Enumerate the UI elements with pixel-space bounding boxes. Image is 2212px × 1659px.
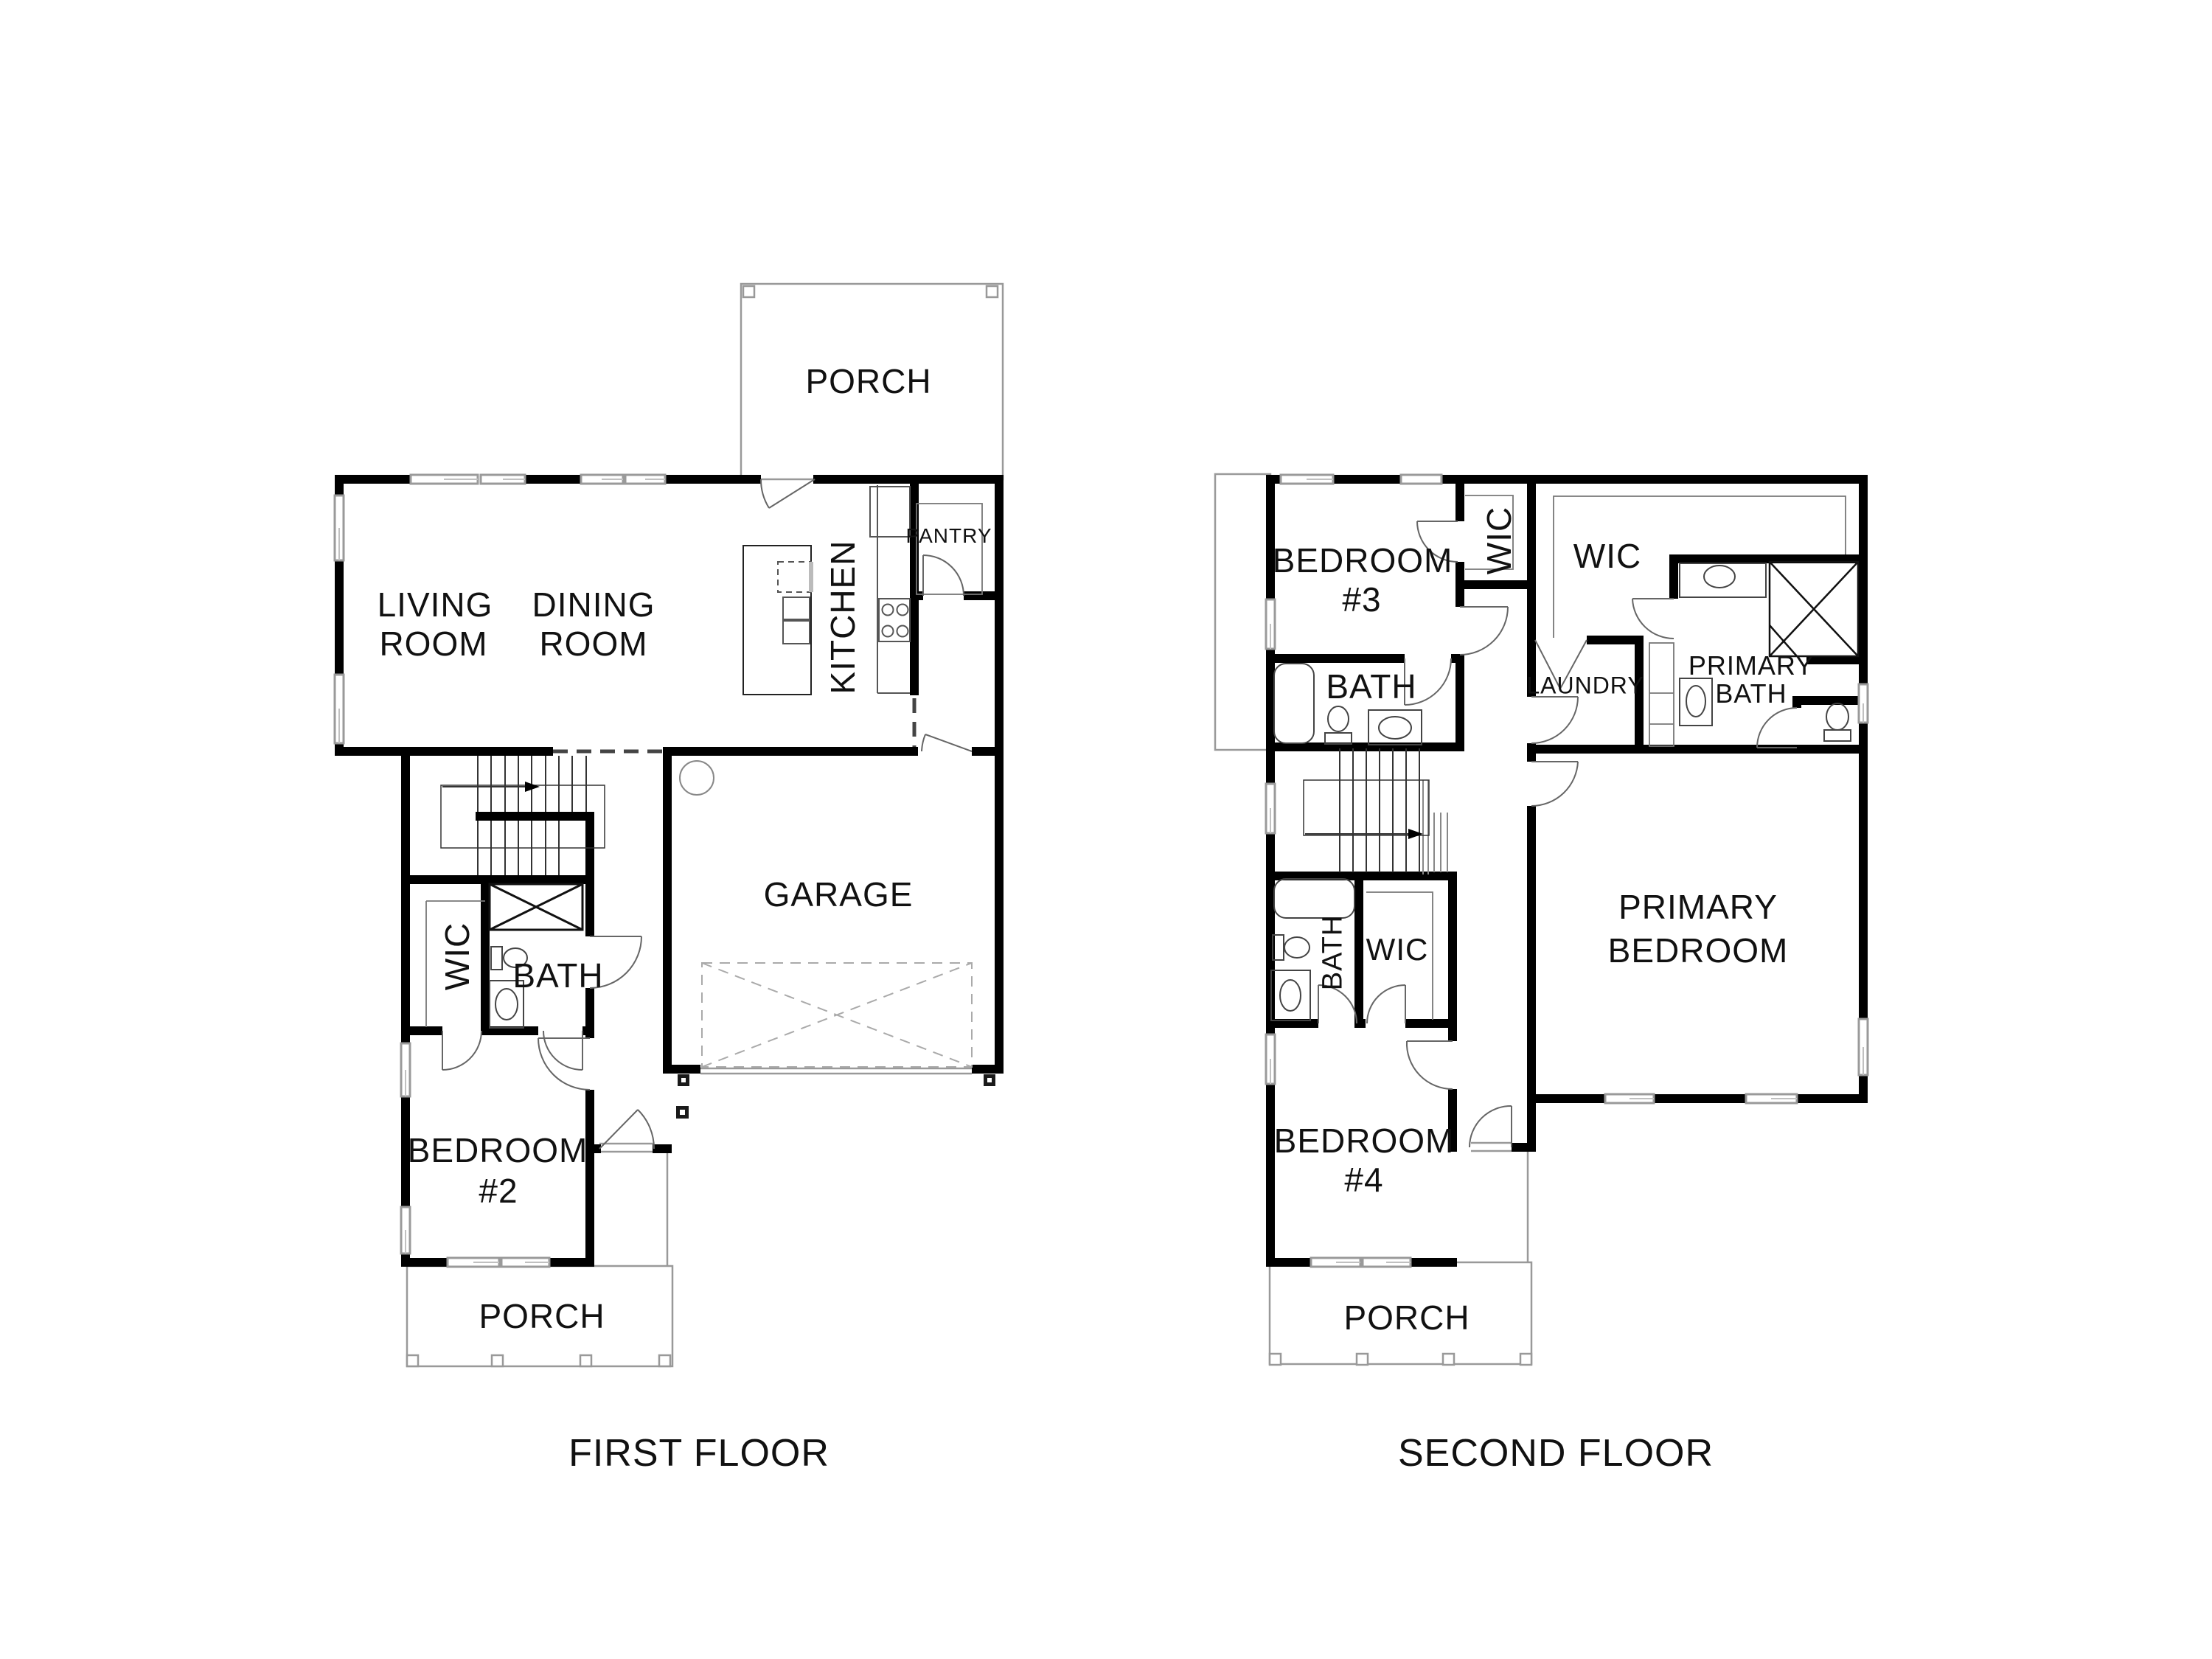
- second-floor-stairs: [1304, 748, 1447, 874]
- label-bedroom4-1: BEDROOM: [1274, 1121, 1455, 1161]
- label-primary-bath-1: PRIMARY: [1688, 650, 1814, 681]
- label-primary-bedroom-2: BEDROOM: [1608, 931, 1789, 970]
- label-living-room-1: LIVING: [378, 585, 493, 625]
- first-floor-title: FIRST FLOOR: [568, 1431, 829, 1475]
- first-floor-cased-openings: [553, 698, 914, 751]
- label-bedroom2-2: #2: [479, 1171, 518, 1211]
- label-pantry: PANTRY: [906, 524, 992, 548]
- label-porch-bottom: PORCH: [479, 1296, 605, 1336]
- first-floor-plan: [335, 284, 1004, 1366]
- second-floor-title: SECOND FLOOR: [1398, 1431, 1714, 1475]
- label-porch-top: PORCH: [805, 361, 931, 401]
- label-porch-second: PORCH: [1343, 1298, 1470, 1338]
- label-kitchen: KITCHEN: [823, 540, 863, 695]
- label-laundry: LAUNDRY: [1526, 672, 1644, 700]
- label-bath-upper: BATH: [1326, 667, 1416, 706]
- first-floor-posts: [676, 1074, 995, 1119]
- label-wic-large: WIC: [1573, 536, 1641, 576]
- label-dining-room-2: ROOM: [539, 624, 647, 664]
- label-primary-bath-2: BATH: [1715, 678, 1787, 709]
- label-bedroom4-2: #4: [1344, 1160, 1383, 1200]
- label-wic-first: WIC: [437, 922, 477, 990]
- kitchen-fixtures: [743, 485, 982, 695]
- label-bedroom3-1: BEDROOM: [1273, 540, 1453, 580]
- label-bath-first: BATH: [512, 956, 603, 995]
- label-living-room-2: ROOM: [379, 624, 487, 664]
- label-bedroom2-1: BEDROOM: [408, 1130, 588, 1170]
- label-wic-small: WIC: [1479, 507, 1519, 574]
- label-dining-room-1: DINING: [532, 585, 655, 625]
- label-bath-lower: BATH: [1318, 915, 1349, 991]
- label-wic-lower: WIC: [1366, 932, 1429, 967]
- label-garage: GARAGE: [764, 874, 914, 914]
- label-bedroom3-2: #3: [1342, 580, 1381, 619]
- floor-plan-page: PORCH LIVING ROOM DINING ROOM KITCHEN PA…: [0, 0, 2212, 1659]
- laundry-cabinets: [1649, 643, 1674, 746]
- floor-plan-canvas: [0, 0, 2212, 1659]
- label-primary-bedroom-1: PRIMARY: [1618, 887, 1778, 927]
